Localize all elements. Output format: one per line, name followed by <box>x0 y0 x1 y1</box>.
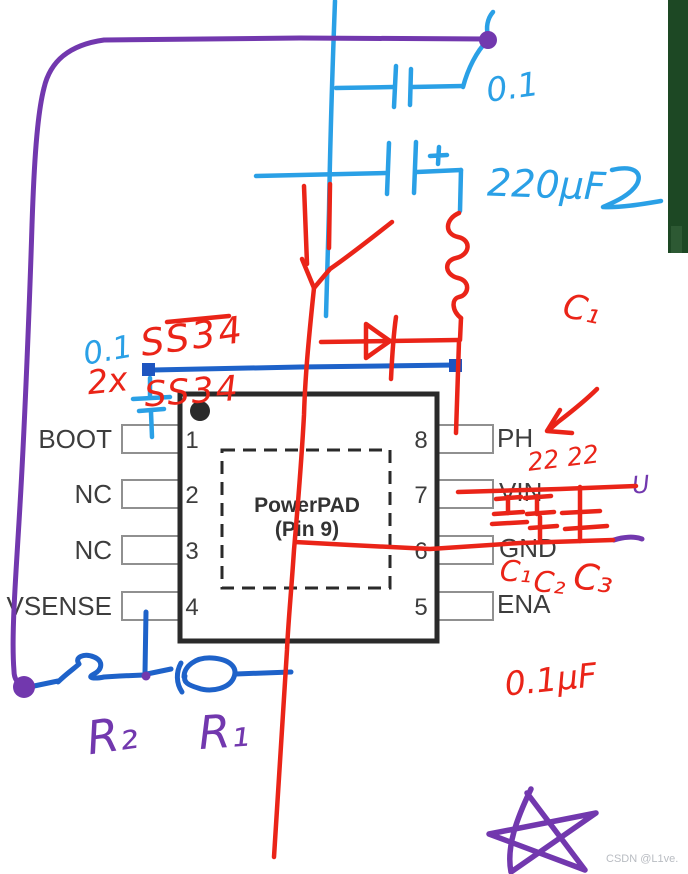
divider-wire-right <box>236 672 291 674</box>
cap2-polarity-plus <box>430 147 447 164</box>
resistor-r1-label: R₁ <box>197 703 251 760</box>
output-cap-flourish <box>603 168 661 207</box>
vsense-junction-dot <box>142 672 151 681</box>
pin-label-vsense: VSENSE <box>7 591 113 621</box>
pin-number-2: 2 <box>185 482 198 509</box>
pin-label-nc2: NC <box>74 479 112 509</box>
pin-number-5: 5 <box>414 594 427 621</box>
resistor-r2-loop <box>58 655 120 682</box>
pin-label-boot: BOOT <box>38 424 112 454</box>
top-cap-value-note: 0.1 <box>484 64 541 110</box>
powerpad-subtitle: (Pin 9) <box>275 518 339 541</box>
pin4-box <box>122 592 180 620</box>
pin-number-6: 6 <box>414 538 427 565</box>
boot-cap-stem-bottom <box>151 412 152 437</box>
pin5-box <box>437 592 493 620</box>
gnd-cap-c2-note: C₂ <box>532 564 568 601</box>
gnd-cap-c1-note: C₁ <box>499 553 533 589</box>
input-cap3-plates <box>562 511 607 529</box>
pin-number-7: 7 <box>414 482 427 509</box>
pin2-box <box>122 480 180 508</box>
inductor-lower-lead <box>456 318 461 433</box>
cap2-right-lead <box>417 170 461 172</box>
loop-node-top <box>479 31 497 49</box>
riser-to-node <box>463 41 487 87</box>
pin8-box <box>437 425 493 453</box>
annotated-datasheet-figure: PowerPAD (Pin 9) BOOT NC NC VSENSE 1 2 3… <box>0 0 688 874</box>
gnd-cap-c3-note: C₃ <box>571 556 616 602</box>
cap2-plate-right <box>414 142 416 193</box>
diode-part-note-bottom: SS34 <box>143 369 241 416</box>
diode-part-note-top: SS34 <box>138 308 248 365</box>
green-sidebar-strip <box>668 0 688 253</box>
pin-number-1: 1 <box>185 427 198 454</box>
pinout-diagram: PowerPAD (Pin 9) BOOT NC NC VSENSE 1 2 3… <box>7 394 557 641</box>
resistor-r1-loop <box>184 658 235 690</box>
input-cap-row2-plates <box>492 522 557 528</box>
diode-wire <box>321 340 458 342</box>
drop-to-inductor <box>460 170 461 211</box>
ph-arrow-shaft <box>549 389 597 430</box>
cap-c1-note-top: C₁ <box>559 286 604 333</box>
cap1-plate-left <box>394 66 396 107</box>
big-arrow-stroke-1 <box>304 186 307 264</box>
diode-cathode-bar <box>391 317 396 379</box>
cap2-plate-left <box>387 143 389 194</box>
resistor-r2-label: R₂ <box>83 705 140 765</box>
loop-node-bottom <box>13 676 35 698</box>
cap2-left-lead <box>256 173 386 176</box>
pin-number-8: 8 <box>414 427 427 454</box>
pin-number-3: 3 <box>185 538 198 565</box>
diode-quantity-note: 2x <box>85 359 130 402</box>
output-cap-value-note: 220µF <box>486 161 607 209</box>
big-arrow-stroke-2 <box>329 184 330 248</box>
vsense-drop-wire <box>145 612 146 673</box>
inductor-coil <box>447 213 467 318</box>
pin-number-4: 4 <box>185 594 198 621</box>
star-doodle <box>489 789 596 872</box>
cap-value-bottom-note: 0.1µF <box>503 655 600 704</box>
ph-22-note: 22 22 <box>526 439 601 477</box>
powerpad-title: PowerPAD <box>254 494 360 517</box>
divider-wire-left <box>34 681 58 686</box>
boot-to-ph-wire <box>153 365 455 370</box>
csdn-watermark: CSDN @L1ve. <box>606 853 678 865</box>
resistor-r1-lead-tick <box>177 663 182 692</box>
pin-label-nc3: NC <box>74 535 112 565</box>
gnd-purple-dash <box>614 537 642 540</box>
pin3-box <box>122 536 180 564</box>
cap1-right-lead <box>412 86 463 87</box>
cap1-left-lead <box>336 87 393 88</box>
